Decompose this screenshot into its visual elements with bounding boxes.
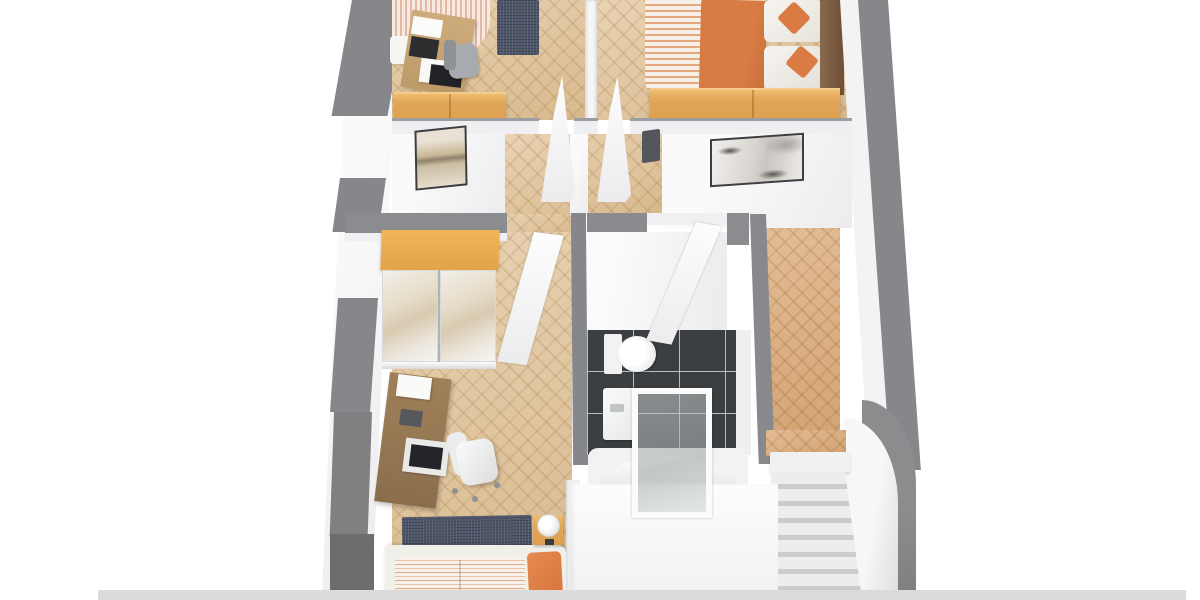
orange-throw-blanket: [699, 0, 767, 94]
lamp-base-dark: [545, 539, 554, 545]
open-laptop-screen: [409, 444, 443, 470]
mirrored-wardrobe-door-right: [440, 270, 496, 362]
framed-picture-beige: [414, 125, 467, 190]
bathroom-top-doorhead: [647, 213, 727, 225]
mirrored-wardrobe-door-left: [382, 270, 438, 362]
wall-radiator: [642, 129, 660, 164]
sink-faucet: [610, 404, 624, 412]
bathroom-top-wall-left: [587, 213, 647, 232]
landing-right-floor: [764, 224, 840, 460]
wardrobe-base-shadow: [382, 362, 496, 369]
left-wall-top-segment-3: [330, 298, 378, 412]
desk-gadget: [399, 409, 423, 428]
chair-caster-1: [452, 488, 458, 494]
desk-chair-back: [444, 40, 456, 70]
floor-plan-render: [0, 0, 1200, 600]
desk-paper-stack: [396, 374, 432, 400]
bathroom-right-wall-strip: [736, 330, 751, 455]
white-table-lamp: [537, 514, 560, 537]
oak-sideboard-seam: [449, 94, 451, 118]
stairs-top-step: [770, 452, 850, 472]
mid-wall-segment-center: [574, 118, 598, 134]
mirrored-wardrobe-top: [380, 230, 499, 270]
hallway-door-gap-floor: [507, 214, 572, 234]
printer-icon: [409, 36, 440, 60]
vestibule-divider-wall: [585, 0, 597, 120]
left-wall-top-segment-4: [330, 412, 372, 536]
navy-rug-top: [497, 0, 539, 55]
white-office-chair-seat: [454, 437, 499, 487]
bathroom-left-wall-top: [571, 213, 588, 465]
oak-foot-bench-seam: [752, 90, 754, 118]
oak-foot-bench: [650, 88, 840, 120]
framed-picture-gray: [710, 133, 804, 188]
wardrobe-door-seam: [438, 270, 440, 362]
ground-baseline-strip: [98, 590, 1186, 600]
toilet-bowl: [618, 336, 656, 372]
bathroom-top-wall-right: [727, 213, 749, 245]
chair-caster-3: [472, 496, 478, 502]
glass-shower-screen: [632, 388, 712, 518]
mid-wall-segment-right: [630, 118, 852, 134]
chair-caster-2: [494, 482, 500, 488]
